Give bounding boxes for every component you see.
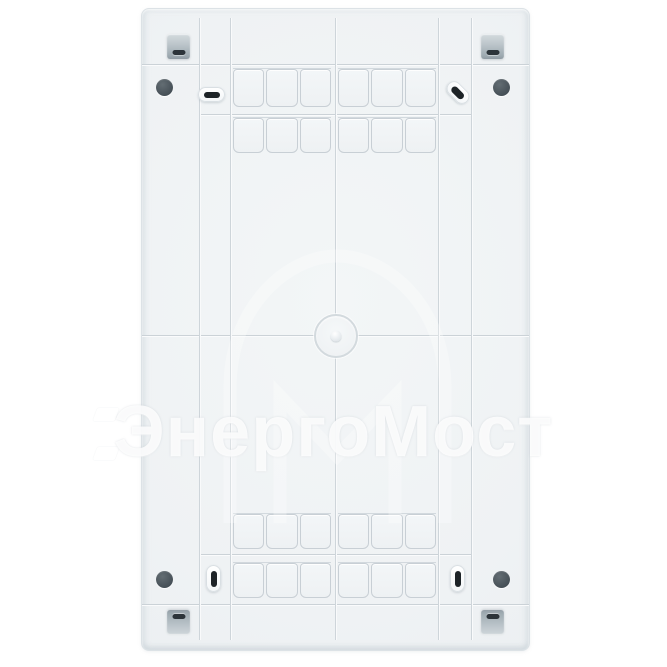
groove-vertical-1 bbox=[199, 18, 201, 640]
knockout-cell bbox=[300, 563, 331, 598]
knockout-group bbox=[338, 563, 436, 598]
screw-hole-bottom-left bbox=[156, 571, 173, 588]
knockout-group bbox=[233, 69, 331, 107]
knockout-cell bbox=[300, 514, 331, 549]
product-photo: ЭнергоМост bbox=[0, 0, 667, 667]
screw-hole-bottom-right bbox=[493, 571, 510, 588]
tab-slot bbox=[486, 614, 499, 619]
knockout-cell bbox=[266, 118, 297, 153]
knockout-cell bbox=[300, 118, 331, 153]
center-pin bbox=[331, 331, 342, 342]
cable-slot-opening bbox=[450, 85, 466, 101]
knockout-cell bbox=[338, 118, 369, 153]
cable-slot-opening bbox=[211, 571, 217, 587]
knockout-cell bbox=[338, 514, 369, 549]
knockout-cell bbox=[371, 118, 402, 153]
tab-slot bbox=[172, 614, 185, 619]
screw-hole-top-right bbox=[493, 79, 510, 96]
knockout-group bbox=[233, 118, 331, 153]
cable-slot-opening bbox=[204, 92, 220, 98]
knockout-cell bbox=[405, 514, 436, 549]
mounting-tab-top-right bbox=[481, 34, 504, 59]
groove-vertical-5 bbox=[471, 18, 473, 640]
mounting-tab-bottom-right bbox=[481, 610, 504, 635]
knockout-cell bbox=[233, 514, 264, 549]
knockout-cell bbox=[405, 69, 436, 107]
tab-slot bbox=[172, 50, 185, 55]
knockout-group bbox=[338, 69, 436, 107]
cable-slot-top-left bbox=[198, 87, 225, 102]
cable-slot-opening bbox=[455, 571, 461, 587]
knockout-cell bbox=[405, 563, 436, 598]
knockout-cell bbox=[300, 69, 331, 107]
knockout-cell bbox=[405, 118, 436, 153]
tab-slot bbox=[486, 50, 499, 55]
center-knockout bbox=[314, 314, 358, 358]
screw-hole-top-left bbox=[156, 79, 173, 96]
enclosure-back-panel bbox=[141, 8, 530, 651]
knockout-cell bbox=[233, 118, 264, 153]
knockout-cell bbox=[266, 563, 297, 598]
mounting-tab-top-left bbox=[167, 34, 190, 59]
mounting-tab-bottom-left bbox=[167, 610, 190, 635]
knockout-cell bbox=[266, 69, 297, 107]
knockout-cell bbox=[266, 514, 297, 549]
cable-slot-top-right bbox=[444, 78, 473, 107]
knockout-cell bbox=[338, 69, 369, 107]
cable-slot-bottom-left bbox=[206, 565, 221, 592]
knockout-group bbox=[338, 118, 436, 153]
knockout-group bbox=[338, 514, 436, 549]
cable-slot-bottom-right bbox=[450, 565, 465, 592]
knockout-group bbox=[233, 563, 331, 598]
knockout-cell bbox=[371, 563, 402, 598]
groove-vertical-2 bbox=[230, 18, 232, 640]
groove-vertical-4 bbox=[438, 18, 440, 640]
watermark-flag-icon bbox=[93, 408, 120, 421]
knockout-cell bbox=[371, 514, 402, 549]
knockout-cell bbox=[233, 69, 264, 107]
knockout-group bbox=[233, 514, 331, 549]
watermark-flag-icon bbox=[93, 447, 120, 460]
knockout-cell bbox=[338, 563, 369, 598]
knockout-cell bbox=[233, 563, 264, 598]
knockout-cell bbox=[371, 69, 402, 107]
